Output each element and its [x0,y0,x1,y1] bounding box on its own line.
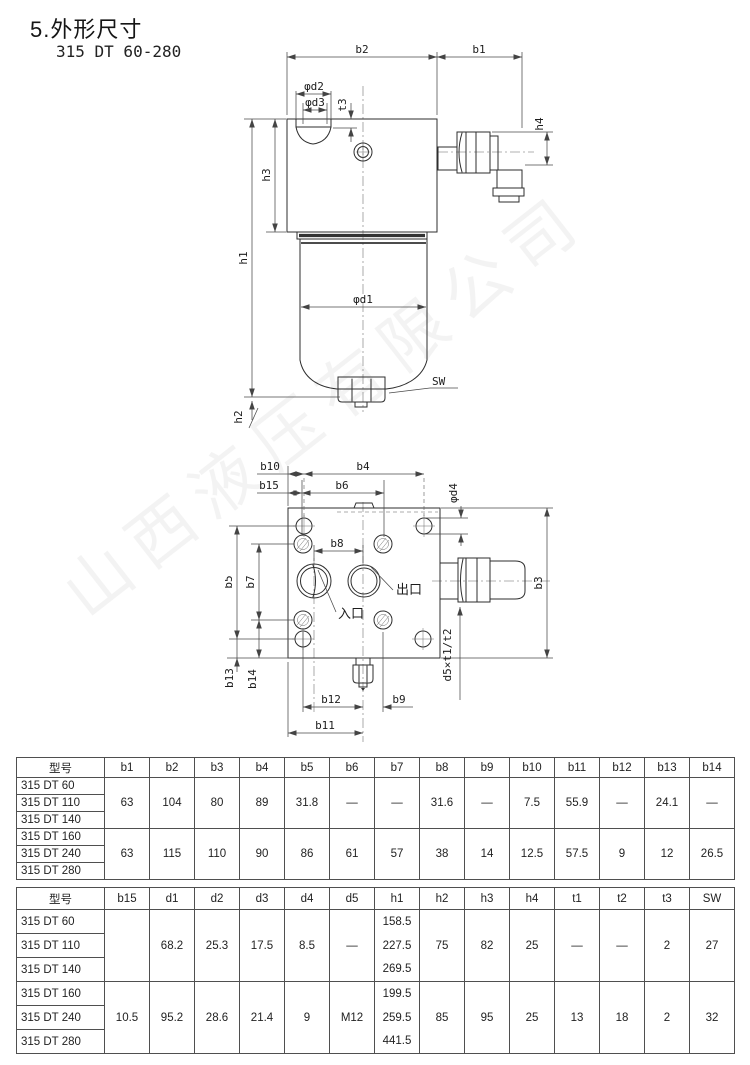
value-cell: 18 [600,982,645,1054]
side-connector [440,558,525,602]
value-cell: 13 [555,982,600,1054]
model-cell: 315 DT 110 [17,795,105,812]
dim-label-b2: b2 [355,45,368,56]
outlet-label: 出口 [396,582,422,597]
value-cell: 38 [420,829,465,880]
column-header: h1 [375,888,420,910]
value-cell: — [375,778,420,829]
dim-label-b1: b1 [472,45,485,56]
value-cell: 32 [690,982,735,1054]
value-cell: — [600,910,645,982]
value-cell: 14 [465,829,510,880]
value-cell: 86 [285,829,330,880]
table-header-row: 型号b1b2b3b4b5b6b7b8b9b10b11b12b13b14 [17,758,735,778]
column-header: d5 [330,888,375,910]
column-header: b5 [285,758,330,778]
column-header: d4 [285,888,330,910]
value-cell: 31.6 [420,778,465,829]
top-tab [354,503,374,508]
value-cell: 104 [150,778,195,829]
value-cell: — [555,910,600,982]
dim-label-b13: b13 [225,668,236,688]
value-cell: 31.8 [285,778,330,829]
column-header: b14 [690,758,735,778]
column-header: t2 [600,888,645,910]
dim-label-b15: b15 [259,479,279,492]
value-cell: 63 [105,778,150,829]
dim-label-phi-d2: φd2 [304,80,324,93]
dimension-table-dht-values: 型号b15d1d2d3d4d5h1h2h3h4t1t2t3SW 315 DT 6… [16,887,735,1054]
model-cell: 315 DT 60 [17,778,105,795]
dim-label-b4: b4 [356,460,370,473]
model-cell: 315 DT 160 [17,982,105,1006]
value-cell: 95.2 [150,982,195,1054]
dim-label-b10: b10 [260,460,280,473]
h1-value-cell: 158.5 [375,910,420,934]
value-cell: 9 [285,982,330,1054]
value-cell: 25.3 [195,910,240,982]
value-cell: 10.5 [105,982,150,1054]
dim-label-phi-d4: φd4 [447,483,460,503]
column-header: b6 [330,758,375,778]
value-cell: 110 [195,829,240,880]
value-cell: 24.1 [645,778,690,829]
value-cell: 26.5 [690,829,735,880]
value-cell: — [330,910,375,982]
value-cell: 75 [420,910,465,982]
column-header: 型号 [17,888,105,910]
value-cell: 25 [510,910,555,982]
h1-value-cell: 259.5 [375,1006,420,1030]
column-header: h4 [510,888,555,910]
dim-label-b3: b3 [532,576,545,589]
section-title: 5.外形尺寸 [30,12,142,44]
value-cell: 21.4 [240,982,285,1054]
value-cell [105,910,150,982]
table-row: 315 DT 1606311511090866157381412.557.591… [17,829,735,846]
value-cell: 57.5 [555,829,600,880]
value-cell: 12.5 [510,829,555,880]
value-cell: M12 [330,982,375,1054]
dim-label-t3: t3 [336,98,349,111]
value-cell: 55.9 [555,778,600,829]
value-cell: 12 [645,829,690,880]
column-header: b9 [465,758,510,778]
column-header: b7 [375,758,420,778]
column-header: h2 [420,888,465,910]
dim-label-b7: b7 [244,575,257,588]
hex-nut [338,377,385,407]
value-cell: 80 [195,778,240,829]
table-header-row: 型号b15d1d2d3d4d5h1h2h3h4t1t2t3SW [17,888,735,910]
value-cell: — [690,778,735,829]
dimension-table-b-values: 型号b1b2b3b4b5b6b7b8b9b10b11b12b13b14 315 … [16,757,735,880]
value-cell: 27 [690,910,735,982]
dim-label-b9: b9 [392,693,405,706]
h1-value-cell: 269.5 [375,958,420,982]
value-cell: 63 [105,829,150,880]
model-cell: 315 DT 110 [17,934,105,958]
value-cell: 90 [240,829,285,880]
dim-label-phi-d1: φd1 [353,293,373,306]
adjust-screw [354,143,372,161]
bottom-view-drawing: b10 b4 b15 b6 φd4 b3 [225,450,590,750]
value-cell: — [600,778,645,829]
model-range-subtitle: 315 DT 60-280 [56,42,181,61]
column-header: b2 [150,758,195,778]
table-row: 315 DT 6068.225.317.58.5—158.5758225——22… [17,910,735,934]
inlet-label: 入口 [338,606,364,621]
column-header: b15 [105,888,150,910]
value-cell: 89 [240,778,285,829]
value-cell: 61 [330,829,375,880]
column-header: b13 [645,758,690,778]
value-cell: 28.6 [195,982,240,1054]
value-cell: — [330,778,375,829]
value-cell: 95 [465,982,510,1054]
dim-label-b12: b12 [321,693,341,706]
dim-label-h3: h3 [260,168,273,181]
document-page: 山西液压有限公司 5.外形尺寸 315 DT 60-280 [0,0,750,1065]
dim-label-b11: b11 [315,719,335,732]
table-row: 315 DT 6063104808931.8——31.6—7.555.9—24.… [17,778,735,795]
dim-label-b8: b8 [330,537,343,550]
value-cell: 9 [600,829,645,880]
value-cell: 2 [645,910,690,982]
column-header: b8 [420,758,465,778]
column-header: b11 [555,758,600,778]
h1-value-cell: 441.5 [375,1030,420,1054]
dim-label-h4: h4 [533,117,546,131]
model-cell: 315 DT 280 [17,863,105,880]
model-cell: 315 DT 240 [17,846,105,863]
model-cell: 315 DT 240 [17,1006,105,1030]
model-cell: 315 DT 140 [17,958,105,982]
dim-label-h2: h2 [232,410,245,423]
column-header: b1 [105,758,150,778]
counterbore-detail [296,119,331,144]
value-cell: 7.5 [510,778,555,829]
column-header: t1 [555,888,600,910]
model-cell: 315 DT 60 [17,910,105,934]
solenoid-tube [300,239,427,389]
column-header: b10 [510,758,555,778]
plug-tip [361,688,365,691]
outlet-port [348,565,380,597]
value-cell: 17.5 [240,910,285,982]
value-cell: 85 [420,982,465,1054]
value-cell: 82 [465,910,510,982]
column-header: h3 [465,888,510,910]
column-header: b4 [240,758,285,778]
column-header: SW [690,888,735,910]
column-header: d3 [240,888,285,910]
column-header: d2 [195,888,240,910]
h1-value-cell: 227.5 [375,934,420,958]
column-header: d1 [150,888,195,910]
table-row: 315 DT 16010.595.228.621.49M12199.585952… [17,982,735,1006]
dim-label-sw: SW [432,375,446,388]
value-cell: 68.2 [150,910,195,982]
model-cell: 315 DT 140 [17,812,105,829]
dim-label-h1: h1 [237,251,250,264]
column-header: 型号 [17,758,105,778]
value-cell: 57 [375,829,420,880]
column-header: t3 [645,888,690,910]
value-cell: 8.5 [285,910,330,982]
value-cell: 2 [645,982,690,1054]
dim-label-b6: b6 [335,479,348,492]
value-cell: 25 [510,982,555,1054]
electrical-connector [438,132,524,202]
value-cell: 115 [150,829,195,880]
dim-label-b5: b5 [225,575,235,588]
front-view-drawing: b2 b1 φd2 φd3 t3 h3 h1 [225,45,570,445]
dim-label-d5-thread: d5×t1/t2 [441,629,454,682]
h1-value-cell: 199.5 [375,982,420,1006]
dim-label-phi-d3: φd3 [305,96,325,109]
model-cell: 315 DT 280 [17,1030,105,1054]
dim-label-b14: b14 [246,669,259,689]
column-header: b3 [195,758,240,778]
model-cell: 315 DT 160 [17,829,105,846]
column-header: b12 [600,758,645,778]
value-cell: — [465,778,510,829]
valve-body-block [287,119,437,232]
